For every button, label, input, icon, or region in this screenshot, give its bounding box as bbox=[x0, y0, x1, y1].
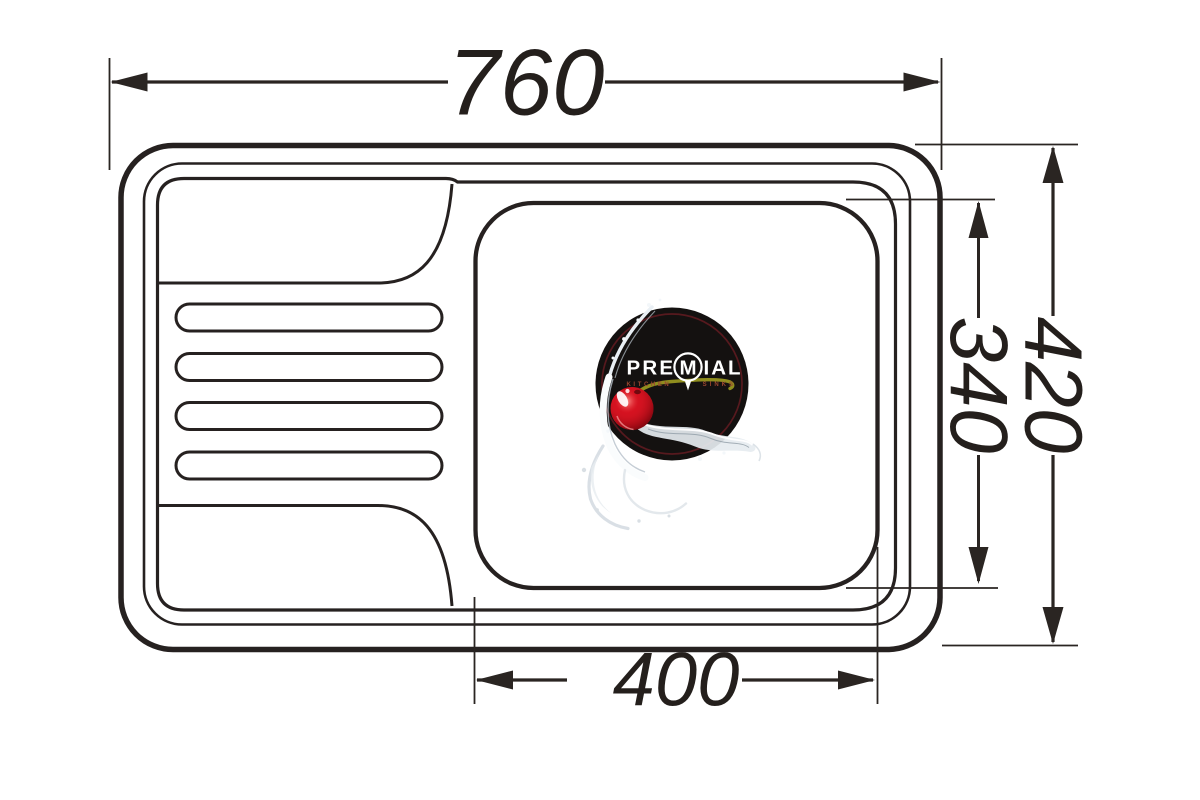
sink-interior-outline bbox=[158, 179, 896, 611]
drainboard-rib-slot bbox=[176, 304, 442, 331]
dimension-label-bowl-depth: 340 bbox=[933, 317, 1024, 454]
drainboard-ribs bbox=[176, 304, 442, 479]
dimension-bowl-depth: 340 bbox=[846, 200, 1024, 589]
splash-streak-outer bbox=[589, 446, 628, 529]
cherry-stem-dimple bbox=[634, 390, 641, 394]
dimension-label-bowl-width: 400 bbox=[613, 638, 740, 723]
logo-tagline-kitchen: KITCHEN bbox=[627, 382, 672, 388]
cherry-highlight bbox=[625, 389, 629, 393]
arrowhead-left bbox=[111, 73, 148, 92]
sink-technical-drawing: PRE M IAL KITCHEN SINKS 760 420 bbox=[0, 0, 1200, 800]
sink-outline bbox=[121, 146, 940, 650]
arrowhead-up bbox=[1043, 146, 1064, 183]
drainboard-rib-slot bbox=[176, 403, 442, 430]
splash-streak-outer bbox=[624, 470, 686, 513]
arrowhead-up bbox=[969, 201, 989, 238]
arrowhead-left bbox=[476, 671, 513, 690]
drainboard-rib-slot bbox=[176, 354, 442, 381]
drainboard-rib-slot bbox=[176, 452, 442, 479]
arrowhead-down bbox=[969, 547, 989, 584]
drainboard-lower-fold-line bbox=[158, 506, 453, 607]
logo-text-m: M bbox=[679, 357, 696, 380]
arrowhead-right bbox=[904, 73, 941, 92]
dimension-bowl-width: 400 bbox=[475, 547, 878, 723]
arrowhead-down bbox=[1043, 607, 1064, 644]
logo-text-ial: IAL bbox=[704, 357, 743, 380]
arrowhead-right bbox=[838, 671, 875, 690]
logo-tagline-sinks: SINKS bbox=[703, 382, 736, 388]
premial-logo-badge: PRE M IAL KITCHEN SINKS bbox=[582, 299, 761, 529]
sink-inner-rim-line bbox=[144, 164, 910, 625]
logo-text-pre: PRE bbox=[627, 357, 676, 380]
dimension-overall-width: 760 bbox=[110, 30, 942, 171]
sink-outer-rim-line bbox=[121, 146, 940, 650]
drainboard-upper-fold-line bbox=[158, 184, 453, 283]
dimension-label-overall-width: 760 bbox=[448, 30, 605, 135]
